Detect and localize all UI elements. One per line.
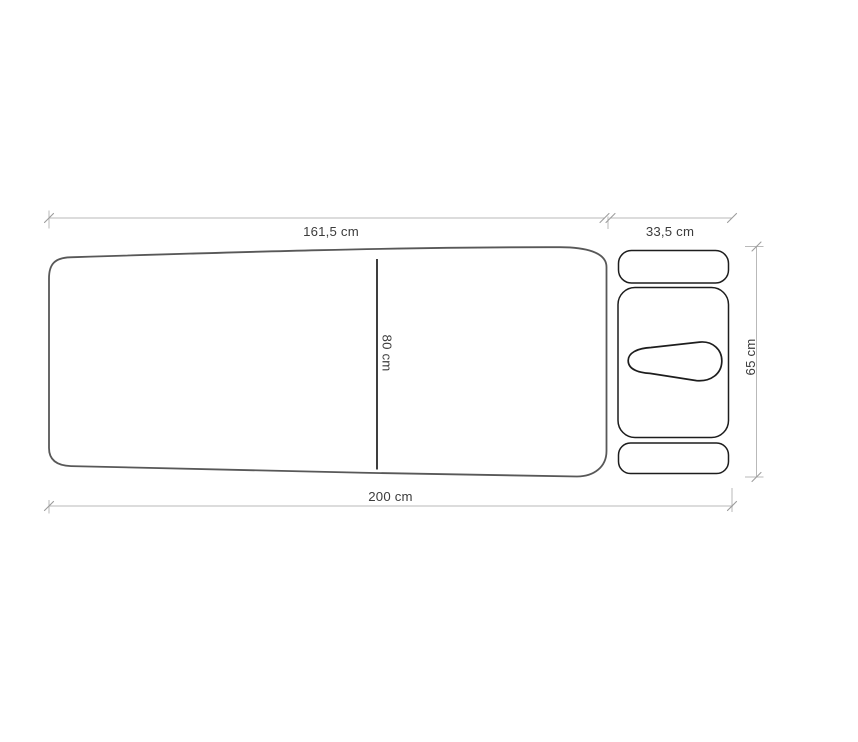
dimension-ticks [45, 214, 762, 511]
table-dimension-diagram: 161,5 cm 33,5 cm 80 cm 200 cm 65 cm [0, 0, 858, 742]
dim-label-table-length: 161,5 cm [303, 224, 359, 239]
dim-label-table-width: 80 cm [380, 335, 395, 372]
table-top-outline [49, 247, 607, 476]
headrest-section [618, 251, 729, 474]
face-hole [628, 342, 722, 381]
headrest-face-cushion [618, 288, 729, 438]
dim-label-total-length: 200 cm [368, 489, 412, 504]
dim-label-headrest-length: 33,5 cm [646, 224, 694, 239]
diagram-page: 161,5 cm 33,5 cm 80 cm 200 cm 65 cm [0, 0, 858, 742]
dim-label-overall-width: 65 cm [743, 339, 758, 376]
headrest-bottom-pad [619, 443, 729, 474]
headrest-top-pad [619, 251, 729, 284]
